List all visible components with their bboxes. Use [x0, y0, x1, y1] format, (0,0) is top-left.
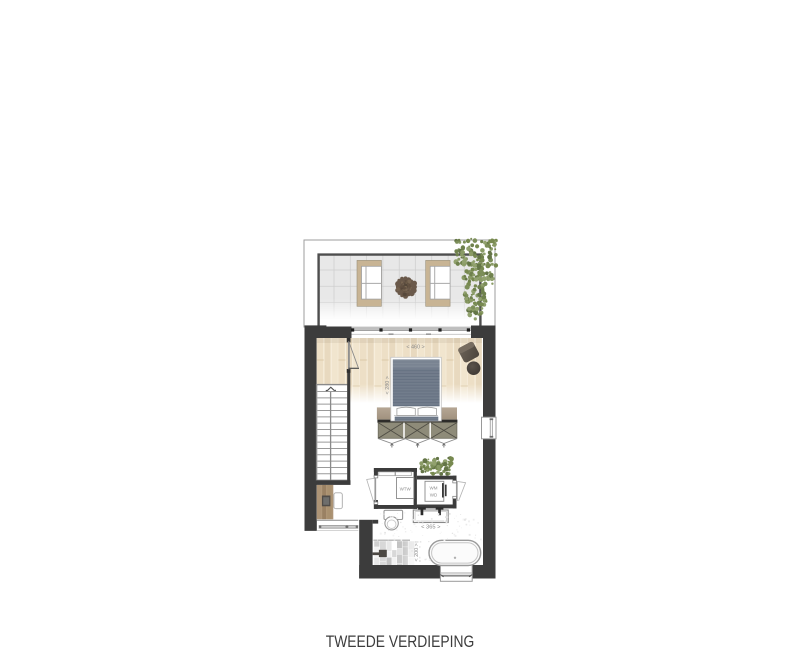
svg-text:< 460 >: < 460 > [406, 344, 424, 350]
svg-text:TWEEDE VERDIEPING: TWEEDE VERDIEPING [326, 633, 475, 651]
svg-text:< 280 >: < 280 > [385, 376, 391, 394]
svg-text:< 200 >: < 200 > [414, 543, 420, 561]
svg-text:WD: WD [430, 493, 438, 498]
svg-text:< 365 >: < 365 > [421, 524, 441, 530]
svg-text:WM: WM [430, 486, 438, 491]
svg-text:WTW: WTW [400, 487, 412, 492]
